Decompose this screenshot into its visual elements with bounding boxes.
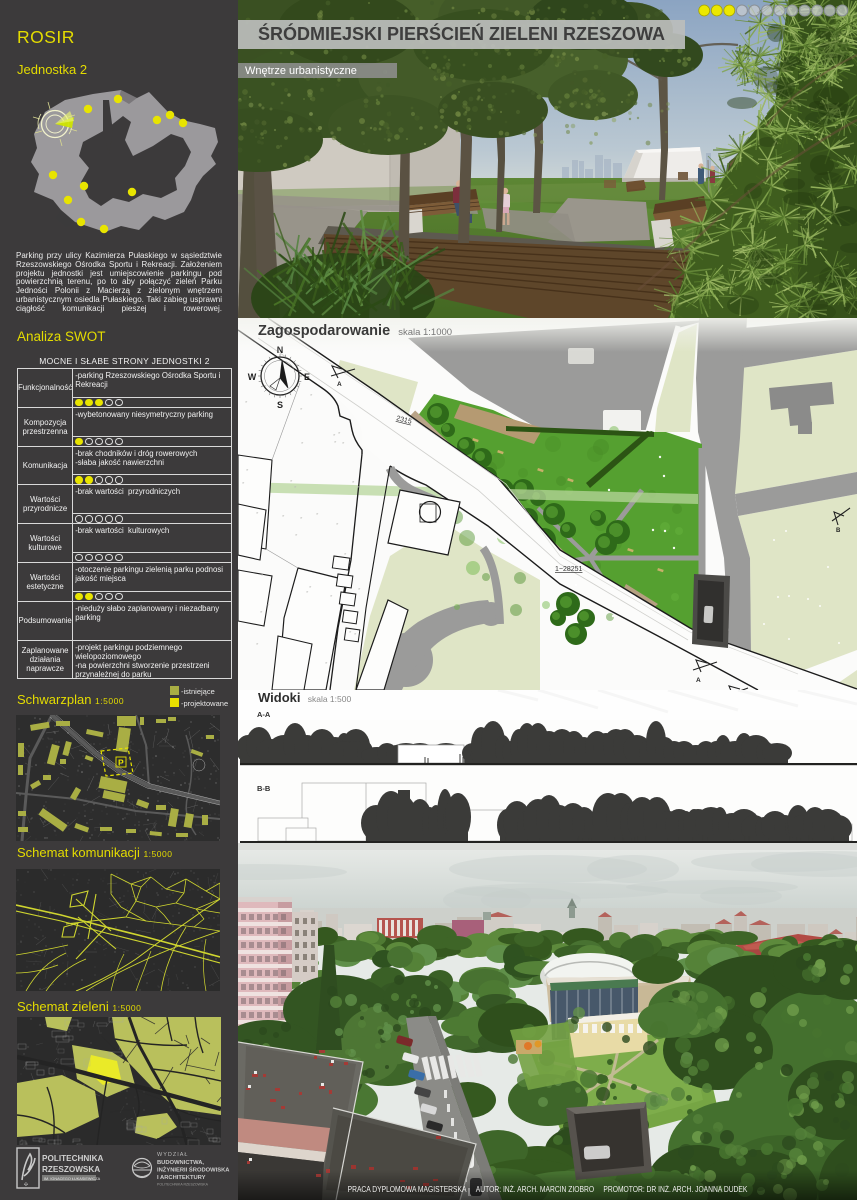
svg-text:✣: ✣ [24, 1182, 28, 1188]
svg-text:A: A [337, 381, 342, 388]
svg-text:I ARCHITEKTURY: I ARCHITEKTURY [157, 1175, 206, 1181]
svg-text:IM. IGNACEGO ŁUKASIEWICZA: IM. IGNACEGO ŁUKASIEWICZA [44, 1177, 101, 1181]
svg-text:S: S [277, 400, 283, 410]
svg-text:W: W [248, 372, 257, 382]
svg-text:RZESZOWSKA: RZESZOWSKA [42, 1165, 100, 1174]
svg-text:INŻYNIERII ŚRODOWISKA: INŻYNIERII ŚRODOWISKA [157, 1167, 230, 1174]
svg-text:WYDZIAŁ: WYDZIAŁ [157, 1152, 188, 1158]
svg-text:POLITECHNIKA RZESZOWSKA: POLITECHNIKA RZESZOWSKA [157, 1183, 209, 1187]
svg-text:P: P [118, 758, 124, 768]
svg-text:POLITECHNIKA: POLITECHNIKA [42, 1154, 103, 1163]
svg-text:BUDOWNICTWA,: BUDOWNICTWA, [157, 1160, 204, 1166]
svg-text:B: B [836, 528, 841, 534]
svg-text:E: E [304, 372, 310, 382]
svg-text:A: A [696, 677, 701, 684]
svg-text:1−28251: 1−28251 [555, 566, 583, 573]
